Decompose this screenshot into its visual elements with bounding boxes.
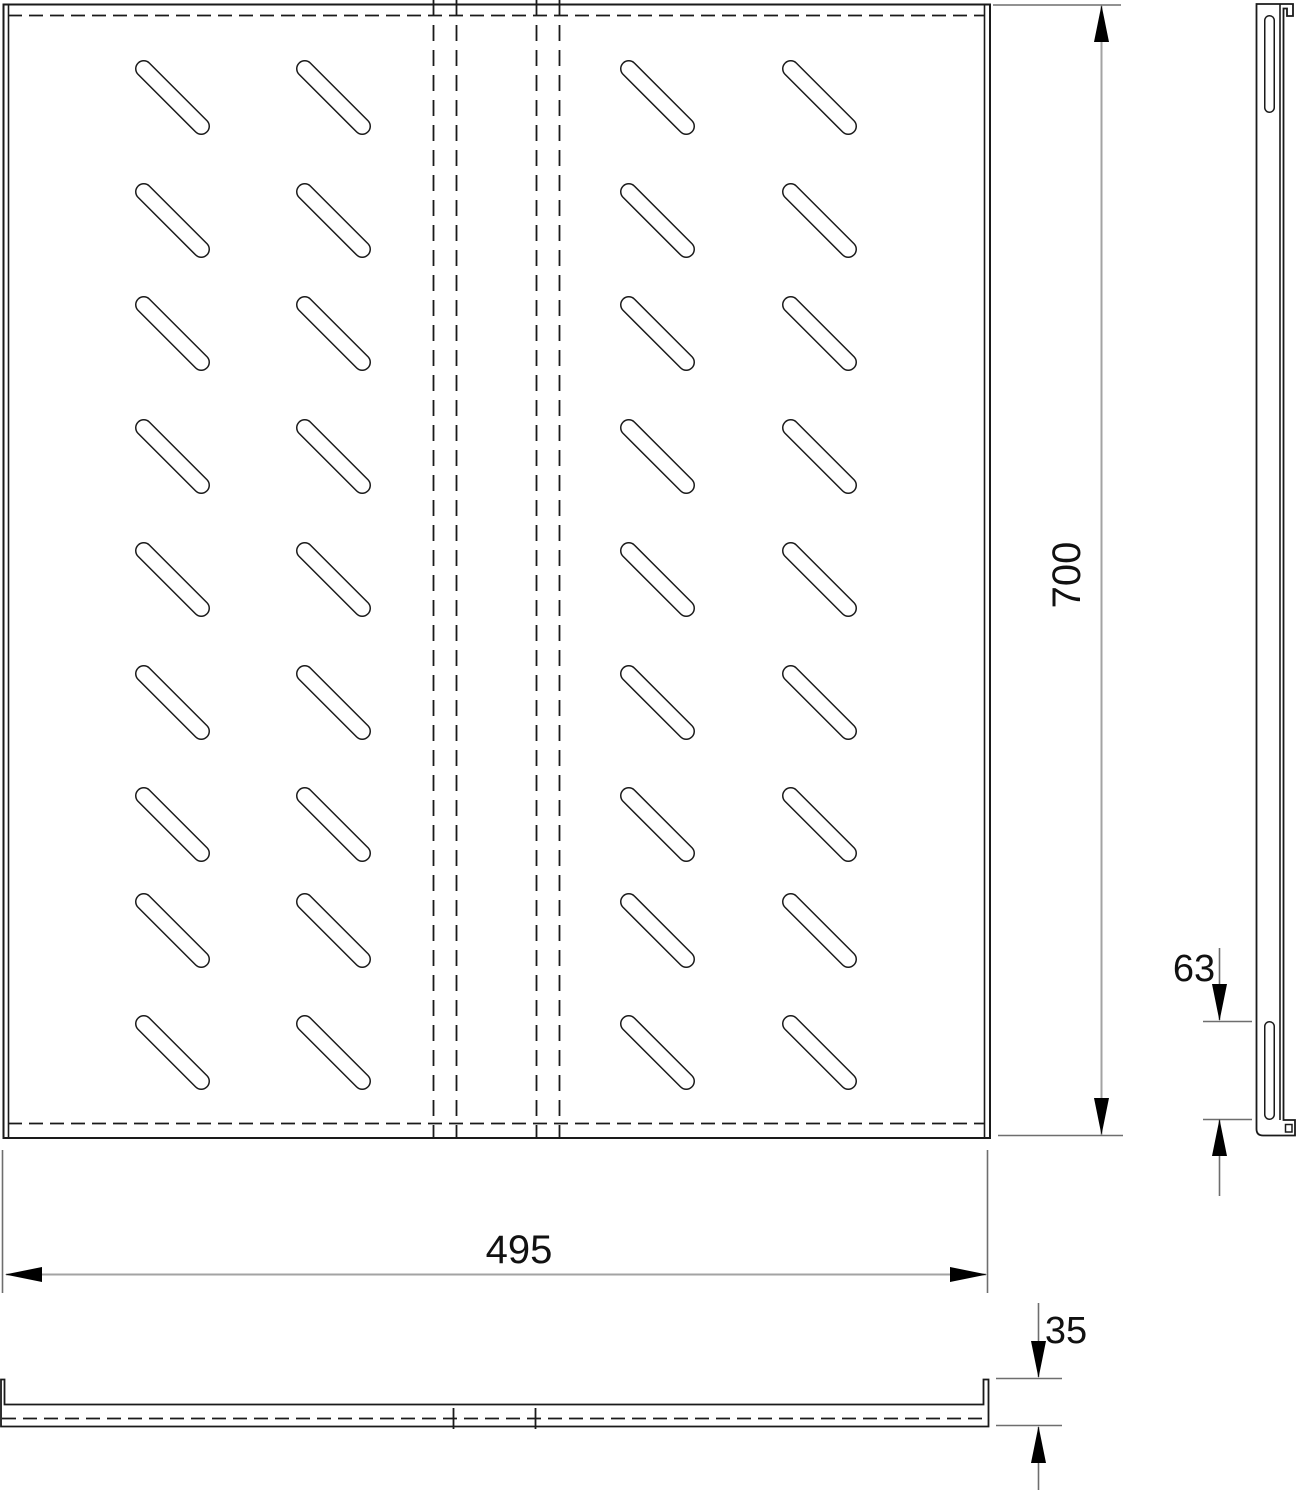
top-view-shelf-plate bbox=[4, 0, 991, 1139]
dimension-label-depth: 700 bbox=[1045, 542, 1089, 609]
front-view-profile bbox=[1, 1380, 989, 1430]
dimension-width-495: 495 bbox=[3, 1150, 988, 1293]
side-profile-outline bbox=[1257, 4, 1296, 1136]
arrowhead-up bbox=[1212, 1119, 1227, 1156]
arrowhead-left bbox=[5, 1267, 42, 1282]
dimension-depth-700: 700 bbox=[993, 5, 1123, 1136]
arrowhead-up bbox=[1031, 1426, 1046, 1463]
technical-drawing-canvas: 700 63 495 35 bbox=[0, 0, 1298, 1500]
dimension-label-width: 495 bbox=[486, 1228, 553, 1272]
side-view-profile bbox=[1257, 4, 1296, 1136]
plate-outline bbox=[4, 5, 991, 1139]
dimension-label-rear-slot: 63 bbox=[1173, 948, 1215, 990]
arrowhead-right bbox=[950, 1267, 987, 1282]
dimension-label-front-height: 35 bbox=[1045, 1310, 1087, 1352]
front-profile-outline bbox=[1, 1380, 989, 1427]
arrowhead-up bbox=[1094, 5, 1109, 42]
dimension-rear-slot-63: 63 bbox=[1173, 948, 1252, 1196]
arrowhead-down bbox=[1031, 1341, 1046, 1378]
arrowhead-down bbox=[1094, 1098, 1109, 1135]
drawing-svg: 700 63 495 35 bbox=[0, 0, 1298, 1500]
dimension-front-height-35: 35 bbox=[996, 1303, 1087, 1490]
